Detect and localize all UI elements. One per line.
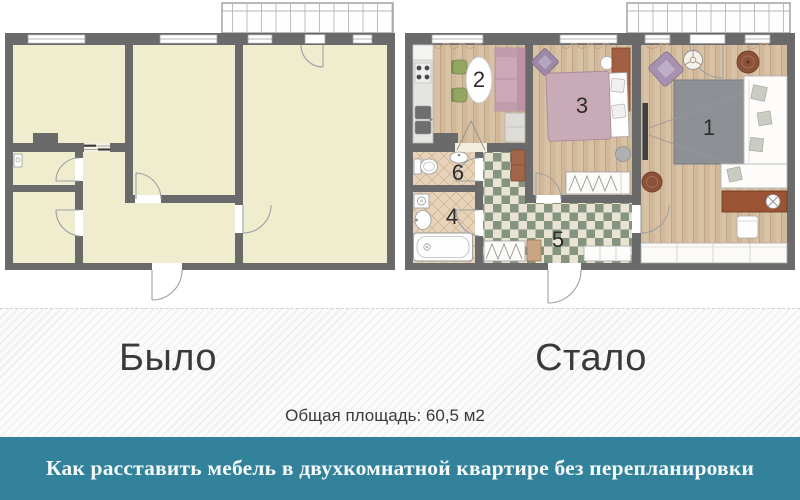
label-before: Было [119,337,217,380]
ceiling-fan [684,51,703,70]
floorplan-before [5,3,395,300]
bathtub [414,233,473,261]
room-number-hallway: 5 [552,227,564,252]
bedside-lamp [601,57,614,70]
hallway-bench [527,240,541,261]
hallway-cabinet [511,150,525,181]
desk-chair [737,216,758,238]
kitchen-sofa [495,48,525,111]
bedroom-closet [566,172,630,194]
room-number-bedroom: 3 [576,93,588,118]
toilet [414,159,438,174]
title-banner: Как расставить мебель в двухкомнатной кв… [0,437,800,500]
room-number-kitchen: 2 [473,67,485,92]
kitchen-cabinet [505,113,525,142]
kitchen-sink [415,106,431,119]
bedroom-stool [616,147,631,162]
windows-after [432,35,770,44]
room-number-bathroom: 4 [446,204,458,229]
living-wardrobe [641,243,787,263]
banner-title: Как расставить мебель в двухкомнатной кв… [46,456,754,481]
total-area-text: Общая площадь: 60,5 м2 [285,406,485,426]
kitchen-counter [413,45,433,143]
desk [722,191,787,212]
sliding-door-before [84,144,110,152]
hallway-closet [484,241,525,261]
pouf-top [737,51,759,73]
label-after: Стало [535,337,647,380]
floorplans-area: 1 2 3 4 5 6 [0,0,800,308]
room-number-toilet: 6 [452,160,464,185]
room-number-living: 1 [703,115,715,140]
floorplan-after: 1 2 3 4 5 6 [405,3,795,303]
bathroom-sink-before [14,154,22,167]
balcony-after [627,3,790,33]
washing-machine [414,194,429,208]
bathroom-sink [415,211,431,230]
stove [415,63,431,83]
windows-before [28,35,372,44]
balcony-before [222,3,393,33]
shoe-cabinet [584,246,631,261]
floorplans-svg: 1 2 3 4 5 6 [0,0,800,308]
captions-section: Было Стало Общая площадь: 60,5 м2 [0,308,800,438]
pouf-bottom [642,172,662,192]
infographic: 1 2 3 4 5 6 Было Стало Общая площадь: 60… [0,0,800,500]
